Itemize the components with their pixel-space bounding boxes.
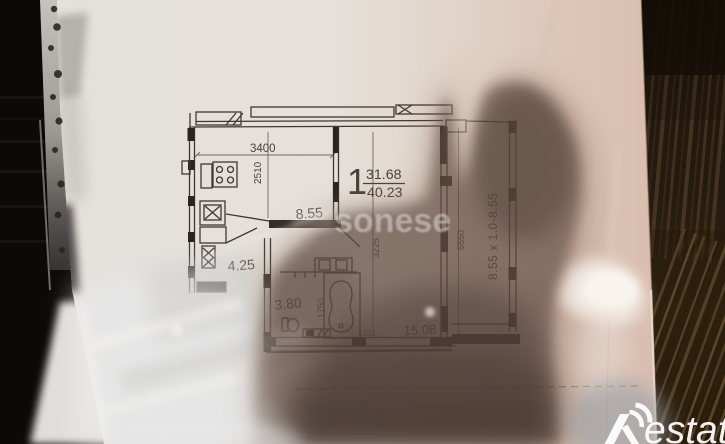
svg-text:31.68: 31.68 xyxy=(366,167,402,183)
svg-text:3400: 3400 xyxy=(250,143,276,155)
svg-text:2510: 2510 xyxy=(253,161,264,184)
svg-text:1: 1 xyxy=(347,161,367,202)
svg-text:sonese: sonese xyxy=(334,202,451,240)
svg-text:estate: estate xyxy=(644,409,725,444)
